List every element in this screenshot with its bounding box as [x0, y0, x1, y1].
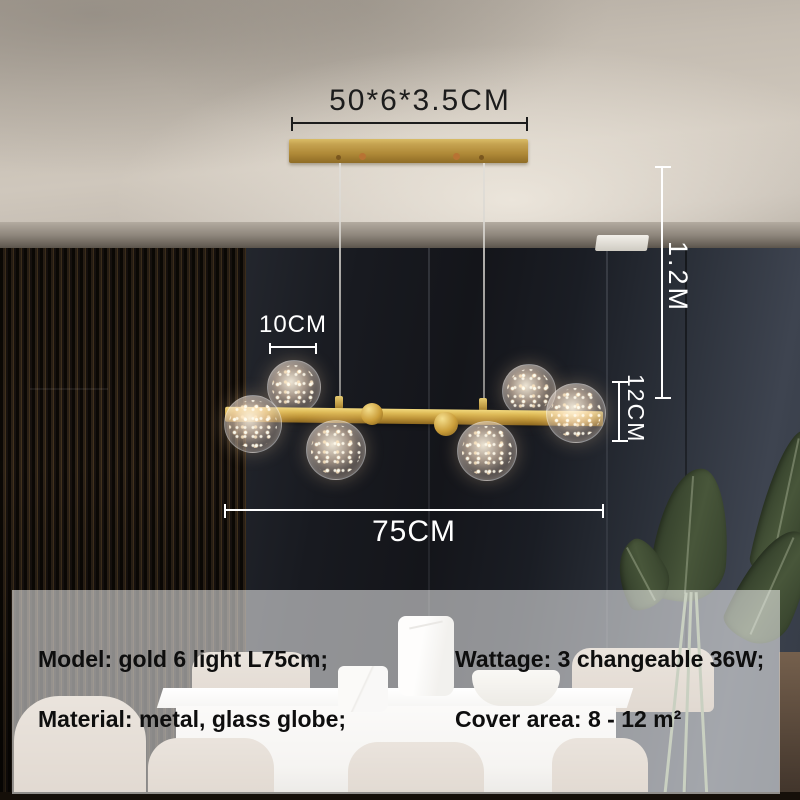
- bar-length-dim-line: [224, 509, 604, 511]
- glass-globe: [306, 420, 366, 480]
- spec-model: Model: gold 6 light L75cm;: [38, 646, 328, 673]
- canopy-screw: [336, 155, 341, 160]
- product-image: 50*6*3.5CM 10CM 75CM 1.2M 12CM Model: go…: [0, 0, 800, 800]
- canopy-screw: [359, 153, 366, 160]
- canopy-dim-line: [291, 122, 528, 124]
- ceiling: [0, 0, 800, 250]
- canopy-screw: [453, 153, 460, 160]
- gold-sphere: [434, 412, 458, 436]
- ceiling-canopy: [289, 139, 528, 163]
- large-globe-diameter-label: 12CM: [622, 374, 649, 443]
- molding-highlight: [595, 235, 649, 251]
- specs-panel: [12, 590, 780, 794]
- small-globe-diameter-label: 10CM: [250, 311, 336, 339]
- canopy-screw: [479, 155, 484, 160]
- bar-length-label: 75CM: [314, 515, 514, 549]
- large-globe-dim-line: [618, 381, 620, 442]
- dining-chair: [779, 652, 800, 800]
- gold-sphere: [361, 403, 383, 425]
- glass-globe: [546, 383, 606, 443]
- suspension-cord: [339, 163, 341, 402]
- spec-wattage: Wattage: 3 changeable 36W;: [455, 646, 764, 673]
- small-globe-dim-line: [269, 346, 317, 348]
- suspension-cord: [483, 163, 485, 404]
- drop-height-label: 1.2M: [662, 241, 693, 313]
- spec-material: Material: metal, glass globe;: [38, 706, 346, 733]
- canopy-size-label: 50*6*3.5CM: [300, 84, 540, 118]
- slat-wall-groove: [30, 388, 108, 390]
- cord-fitting: [335, 396, 343, 409]
- glass-globe: [224, 395, 282, 453]
- glass-globe: [457, 421, 517, 481]
- spec-cover-area: Cover area: 8 - 12 m²: [455, 706, 681, 733]
